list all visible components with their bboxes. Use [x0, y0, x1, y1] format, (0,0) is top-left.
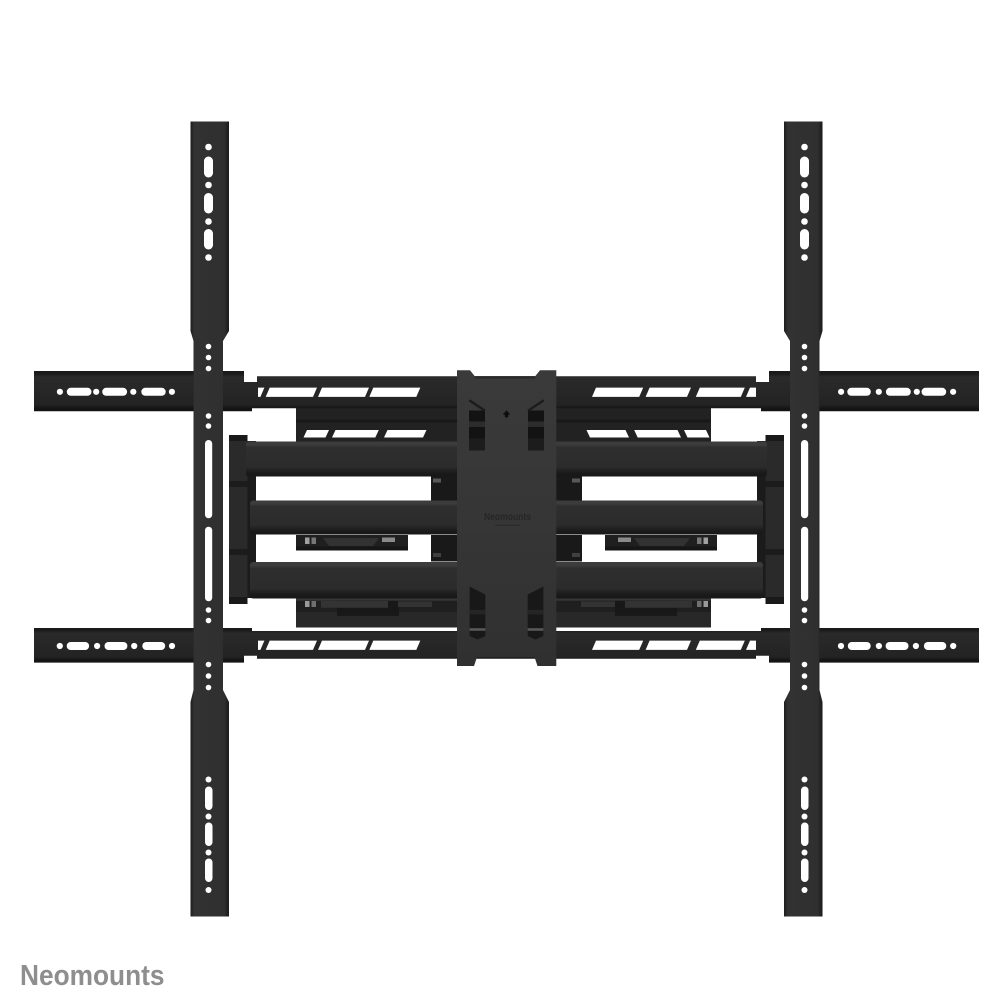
svg-text:Neomounts: Neomounts: [20, 960, 165, 992]
svg-text:Neomounts: Neomounts: [484, 511, 531, 523]
